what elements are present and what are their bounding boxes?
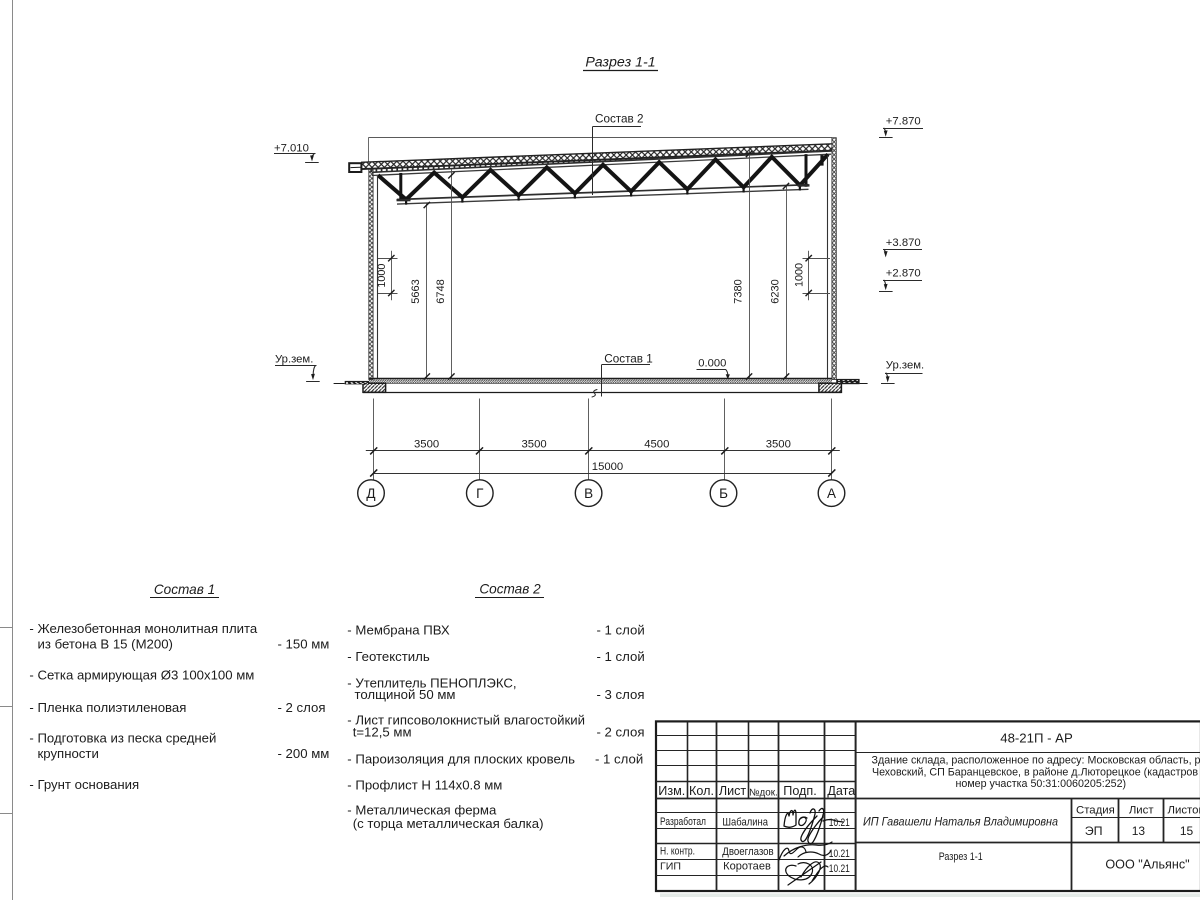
svg-text:15000: 15000 xyxy=(592,461,623,473)
svg-text:- 150 мм: - 150 мм xyxy=(278,637,330,652)
svg-text:ГИП: ГИП xyxy=(660,862,681,873)
svg-text:№док.: №док. xyxy=(749,787,778,798)
svg-text:Лист: Лист xyxy=(719,784,747,798)
svg-text:- Профлист Н 114х0.8 мм: - Профлист Н 114х0.8 мм xyxy=(347,778,502,793)
svg-text:Листов: Листов xyxy=(1167,805,1200,817)
svg-text:- 1 слой: - 1 слой xyxy=(597,649,645,664)
svg-text:Разрез 1-1: Разрез 1-1 xyxy=(939,851,983,863)
svg-text:Ур.зем.: Ур.зем. xyxy=(275,353,313,365)
svg-text:из бетона В 15 (М200): из бетона В 15 (М200) xyxy=(38,637,173,652)
svg-text:- 200 мм: - 200 мм xyxy=(278,746,330,761)
svg-text:1000: 1000 xyxy=(794,263,806,287)
svg-text:Состав 2: Состав 2 xyxy=(595,113,643,126)
svg-text:+7.010: +7.010 xyxy=(274,142,309,154)
svg-text:Д: Д xyxy=(366,486,375,501)
svg-text:Подп.: Подп. xyxy=(783,784,816,798)
svg-text:5663: 5663 xyxy=(410,279,422,303)
svg-text:ИП Гавашели Наталья Владимиров: ИП Гавашели Наталья Владимировна xyxy=(863,817,1058,829)
svg-text:1000: 1000 xyxy=(376,264,388,288)
svg-text:- Пленка полиэтиленовая: - Пленка полиэтиленовая xyxy=(29,700,186,715)
svg-text:ЭП: ЭП xyxy=(1085,824,1103,838)
svg-text:10.21: 10.21 xyxy=(829,863,850,875)
svg-text:3500: 3500 xyxy=(522,439,547,451)
svg-text:+2.870: +2.870 xyxy=(886,267,921,279)
svg-text:Состав 1: Состав 1 xyxy=(154,582,215,597)
svg-text:Стадия: Стадия xyxy=(1076,805,1115,817)
svg-text:13: 13 xyxy=(1132,824,1146,838)
svg-text:В: В xyxy=(584,486,593,501)
svg-text:Состав 2: Состав 2 xyxy=(479,581,541,596)
svg-text:- 1 слой: - 1 слой xyxy=(595,752,643,767)
svg-text:Чеховский, СП Баранцевское, в: Чеховский, СП Баранцевское, в районе д.Л… xyxy=(872,766,1198,778)
svg-text:Ур.зем.: Ур.зем. xyxy=(886,359,924,371)
svg-text:крупности: крупности xyxy=(38,746,99,761)
svg-text:15: 15 xyxy=(1180,824,1194,838)
svg-text:t=12,5 мм: t=12,5 мм xyxy=(353,725,412,740)
svg-text:- Сетка армирующая Ø3 100х100: - Сетка армирующая Ø3 100х100 мм xyxy=(29,668,254,683)
svg-text:- Грунт основания: - Грунт основания xyxy=(29,777,139,792)
svg-text:толщиной 50 мм: толщиной 50 мм xyxy=(355,687,456,702)
svg-text:Шабалина: Шабалина xyxy=(722,817,768,829)
svg-text:Н. контр.: Н. контр. xyxy=(660,846,695,858)
svg-text:Изм.: Изм. xyxy=(658,784,685,798)
svg-text:10.21: 10.21 xyxy=(829,848,850,860)
svg-text:48-21П - АР: 48-21П - АР xyxy=(1000,731,1073,746)
svg-text:Б: Б xyxy=(719,486,728,501)
svg-text:3500: 3500 xyxy=(766,439,791,451)
svg-text:0.000: 0.000 xyxy=(698,358,726,370)
svg-text:Двоеглазов: Двоеглазов xyxy=(722,846,773,858)
svg-text:- Геотекстиль: - Геотекстиль xyxy=(347,649,430,664)
svg-text:7380: 7380 xyxy=(732,279,744,303)
svg-text:6748: 6748 xyxy=(435,279,447,303)
svg-text:- Мембрана ПВХ: - Мембрана ПВХ xyxy=(347,623,450,638)
svg-text:6230: 6230 xyxy=(770,279,782,303)
svg-text:(с торца металлическая балка): (с торца металлическая балка) xyxy=(353,816,544,831)
svg-text:Г: Г xyxy=(476,486,484,501)
svg-text:+7.870: +7.870 xyxy=(886,115,921,127)
svg-text:Дата: Дата xyxy=(827,784,855,798)
svg-text:- 1 слой: - 1 слой xyxy=(597,623,645,638)
svg-text:4500: 4500 xyxy=(644,439,669,451)
svg-text:- 3 слоя: - 3 слоя xyxy=(597,687,645,702)
svg-text:10.21: 10.21 xyxy=(829,817,850,829)
svg-text:- 2 слоя: - 2 слоя xyxy=(278,700,326,715)
svg-text:Здание склада, расположенное п: Здание склада, расположенное по адресу: … xyxy=(872,755,1200,767)
svg-text:Лист: Лист xyxy=(1129,805,1155,817)
svg-text:Состав 1: Состав 1 xyxy=(604,352,652,365)
svg-text:- Подготовка из песка средней: - Подготовка из песка средней xyxy=(29,731,216,746)
svg-text:номер участка 50:31:0060205:25: номер участка 50:31:0060205:252) xyxy=(955,778,1126,790)
svg-text:3500: 3500 xyxy=(414,439,439,451)
svg-text:Кол.: Кол. xyxy=(689,784,714,798)
svg-text:ООО "Альянс": ООО "Альянс" xyxy=(1105,858,1189,872)
svg-text:+3.870: +3.870 xyxy=(886,237,921,249)
svg-text:- Пароизоляция для плоских кро: - Пароизоляция для плоских кровель xyxy=(347,752,575,767)
svg-text:А: А xyxy=(827,486,836,501)
svg-text:Разрез 1-1: Разрез 1-1 xyxy=(585,55,655,71)
svg-text:Коротаев: Коротаев xyxy=(723,860,771,872)
svg-text:- 2 слоя: - 2 слоя xyxy=(597,725,645,740)
svg-text:Разработал: Разработал xyxy=(660,816,706,828)
svg-text:- Железобетонная монолитная п: - Железобетонная монолитная плита xyxy=(29,621,258,636)
